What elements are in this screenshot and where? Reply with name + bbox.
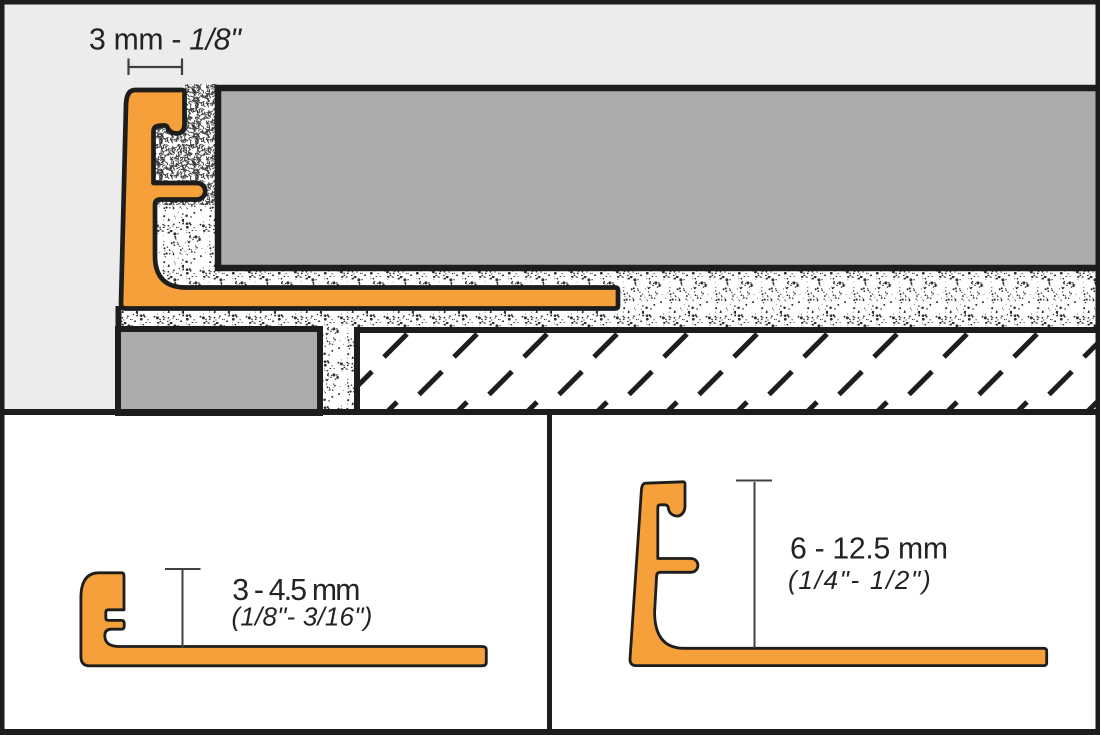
svg-text:3 mm - 1/8": 3 mm - 1/8": [89, 23, 242, 56]
svg-text:(1/4"- 1/2"): (1/4"- 1/2"): [788, 565, 932, 595]
svg-text:6 - 12.5 mm: 6 - 12.5 mm: [790, 532, 948, 565]
svg-text:(1/8"- 3/16"): (1/8"- 3/16"): [232, 602, 373, 632]
